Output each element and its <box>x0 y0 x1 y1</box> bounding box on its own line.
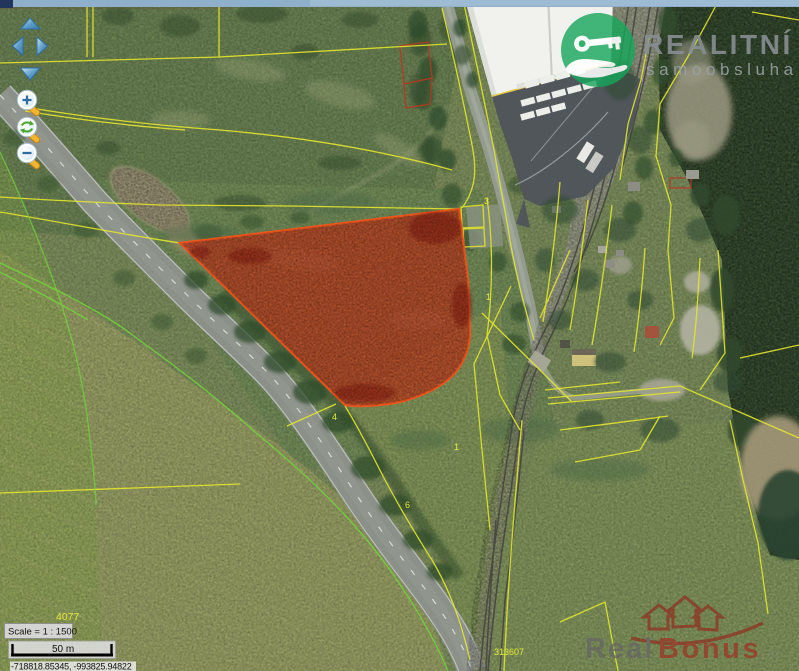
svg-text:6: 6 <box>405 500 410 510</box>
svg-text:Real: Real <box>585 633 654 665</box>
svg-text:4: 4 <box>332 412 337 422</box>
svg-text:.cz: .cz <box>764 647 779 661</box>
svg-text:50 m: 50 m <box>52 644 74 655</box>
svg-text:Bonus: Bonus <box>658 633 761 665</box>
svg-text:3: 3 <box>484 196 489 206</box>
svg-text:Scale = 1 : 1500: Scale = 1 : 1500 <box>8 627 77 638</box>
svg-text:-718818.85345, -993825.94822: -718818.85345, -993825.94822 <box>11 662 132 671</box>
svg-text:samoobsluha: samoobsluha <box>646 60 798 79</box>
svg-text:1: 1 <box>454 442 459 452</box>
svg-text:1: 1 <box>486 292 491 302</box>
svg-text:REALITNÍ: REALITNÍ <box>643 29 793 60</box>
svg-text:4077: 4077 <box>56 611 80 623</box>
svg-text:313607: 313607 <box>494 647 524 657</box>
